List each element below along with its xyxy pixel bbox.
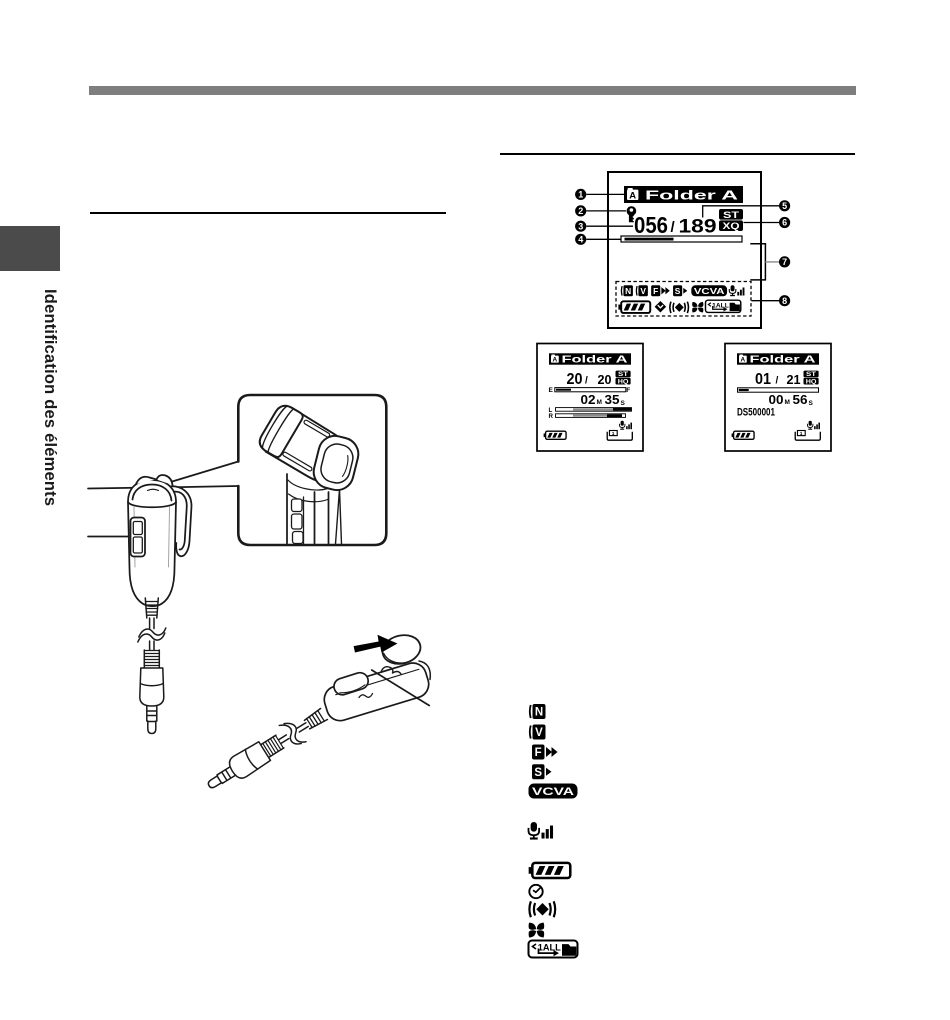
svg-text:R: R [549, 413, 554, 420]
svg-text:F: F [626, 387, 630, 394]
svg-text:189: 189 [679, 217, 717, 238]
svg-text:20: 20 [598, 372, 612, 387]
svg-text:6: 6 [782, 218, 787, 228]
svg-text:Folder A: Folder A [750, 355, 816, 366]
svg-text:20: 20 [567, 371, 583, 388]
svg-text:56: 56 [793, 392, 808, 407]
svg-text:M: M [597, 399, 602, 406]
svg-text:E: E [549, 387, 554, 394]
svg-text:00: 00 [769, 392, 784, 407]
svg-text:056: 056 [634, 212, 668, 238]
svg-text:21: 21 [787, 372, 801, 387]
svg-text:4: 4 [578, 235, 583, 245]
svg-text:5: 5 [782, 201, 787, 211]
svg-text:3: 3 [578, 221, 583, 231]
svg-text:01: 01 [755, 371, 771, 388]
svg-text:Folder A: Folder A [645, 187, 739, 202]
svg-text:S: S [809, 400, 814, 407]
svg-text:S: S [621, 400, 626, 407]
svg-text:7: 7 [782, 257, 787, 267]
svg-text:/: / [585, 376, 588, 387]
svg-text:1: 1 [578, 190, 583, 200]
svg-text:02: 02 [581, 392, 596, 407]
svg-text:/: / [776, 376, 779, 387]
svg-text:Folder A: Folder A [562, 355, 628, 366]
svg-text:35: 35 [605, 392, 620, 407]
svg-text:DS500001: DS500001 [737, 406, 775, 418]
svg-text:M: M [785, 399, 790, 406]
svg-text:2: 2 [578, 206, 583, 216]
svg-text:8: 8 [782, 296, 787, 306]
